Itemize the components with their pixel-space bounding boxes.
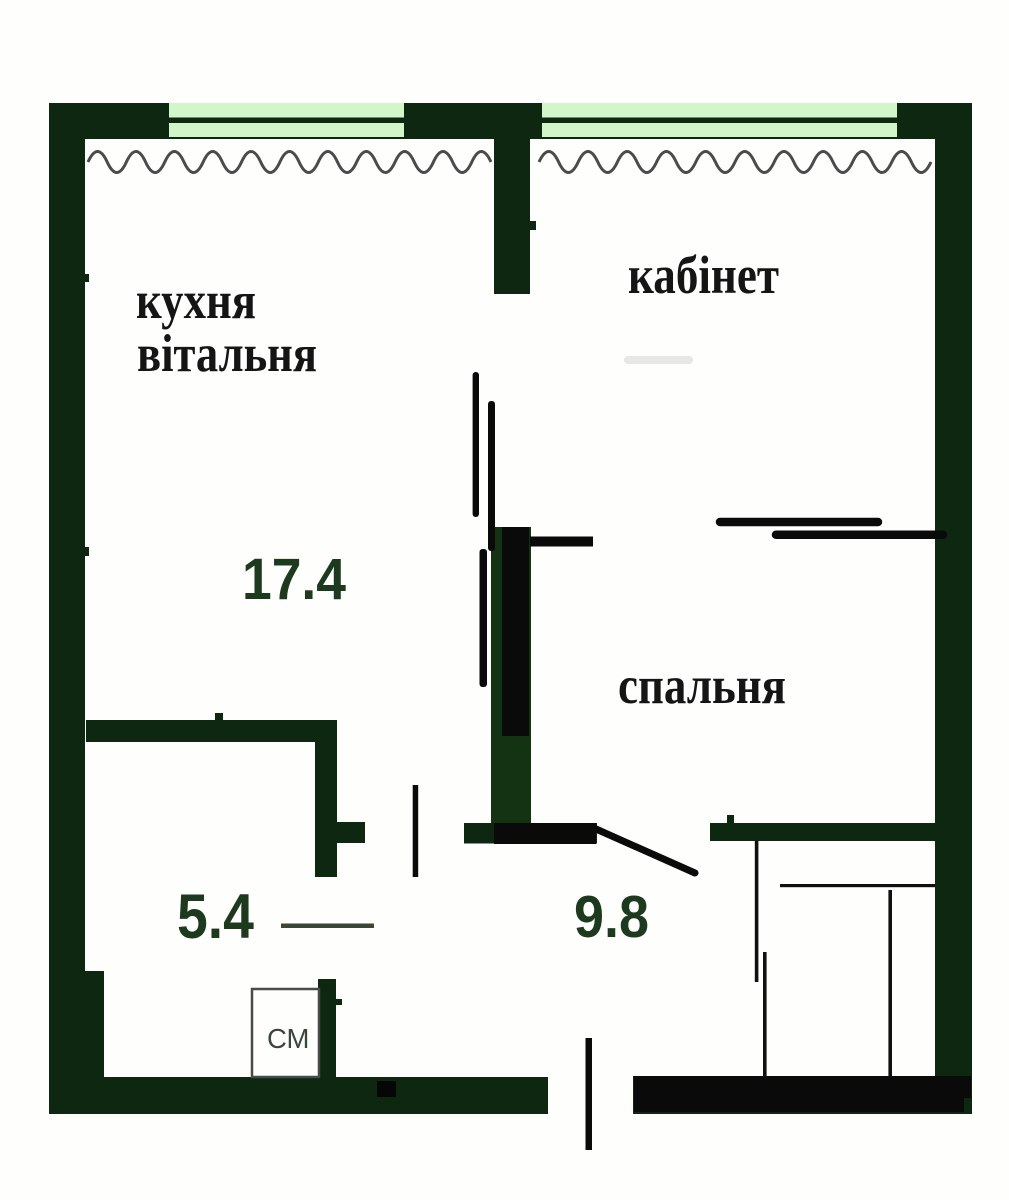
svg-text:спальня: спальня: [618, 657, 786, 715]
svg-text:9.8: 9.8: [574, 884, 649, 950]
svg-text:5.4: 5.4: [177, 882, 254, 952]
svg-text:вітальня: вітальня: [137, 325, 317, 383]
svg-text:17.4: 17.4: [242, 547, 346, 612]
svg-text:кабінет: кабінет: [628, 245, 779, 305]
svg-text:СМ: СМ: [267, 1023, 309, 1054]
svg-text:кухня: кухня: [136, 272, 256, 330]
